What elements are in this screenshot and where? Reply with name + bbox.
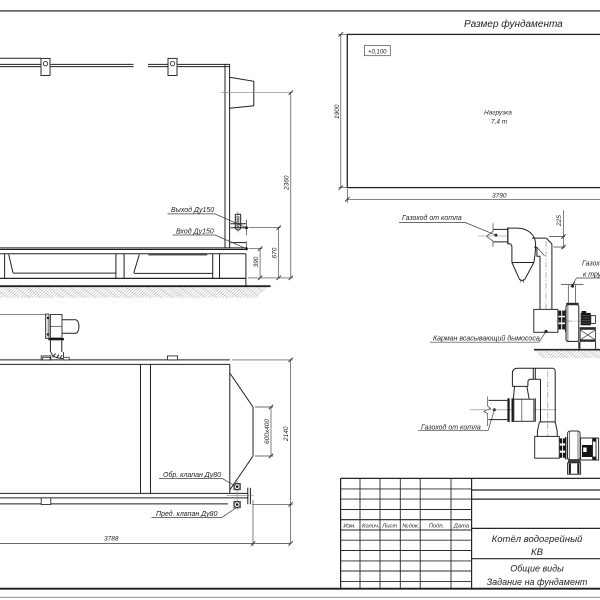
- svg-text:390: 390: [253, 256, 260, 267]
- svg-text:КВ: КВ: [531, 547, 544, 558]
- svg-text:600х400: 600х400: [264, 419, 271, 444]
- svg-text:Пред. клапан Ду80: Пред. клапан Ду80: [156, 510, 218, 518]
- svg-text:Лист: Лист: [381, 524, 397, 530]
- svg-text:670: 670: [272, 247, 279, 258]
- svg-text:Задание на фундамент: Задание на фундамент: [487, 577, 588, 587]
- svg-text:Нагрузка: Нагрузка: [484, 110, 512, 117]
- svg-text:Газоход от котла: Газоход от котла: [421, 423, 481, 431]
- svg-text:1900: 1900: [334, 104, 341, 119]
- svg-text:Обр. клапан Ду80: Обр. клапан Ду80: [163, 471, 221, 479]
- svg-text:Колич.: Колич.: [362, 524, 380, 530]
- svg-text:3788: 3788: [104, 535, 119, 542]
- svg-text:Котёл водогрейный: Котёл водогрейный: [492, 534, 583, 545]
- svg-text:2140: 2140: [283, 426, 290, 442]
- svg-text:2360: 2360: [284, 175, 291, 191]
- svg-text:Подп.: Подп.: [429, 524, 444, 530]
- svg-text:Выход Ду150: Выход Ду150: [171, 206, 214, 214]
- svg-text:Размер фундамента: Размер фундамента: [464, 18, 563, 30]
- svg-text:225: 225: [556, 215, 563, 227]
- svg-text:7,4 т: 7,4 т: [491, 119, 508, 126]
- svg-text:Вход Ду150: Вход Ду150: [176, 228, 214, 236]
- svg-text:№док.: №док.: [402, 524, 419, 530]
- svg-text:к трубе: к трубе: [583, 271, 600, 279]
- svg-text:Дата: Дата: [453, 524, 470, 530]
- svg-text:Газоход от котла: Газоход от котла: [402, 214, 462, 222]
- svg-text:Изм.: Изм.: [343, 524, 355, 530]
- svg-text:Газоход: Газоход: [582, 260, 600, 268]
- svg-text:Общие виды: Общие виды: [510, 564, 564, 574]
- svg-text:3790: 3790: [492, 193, 507, 200]
- svg-text:Карман всасывающий дымососа: Карман всасывающий дымососа: [433, 334, 540, 342]
- svg-text:+0,100: +0,100: [368, 49, 387, 55]
